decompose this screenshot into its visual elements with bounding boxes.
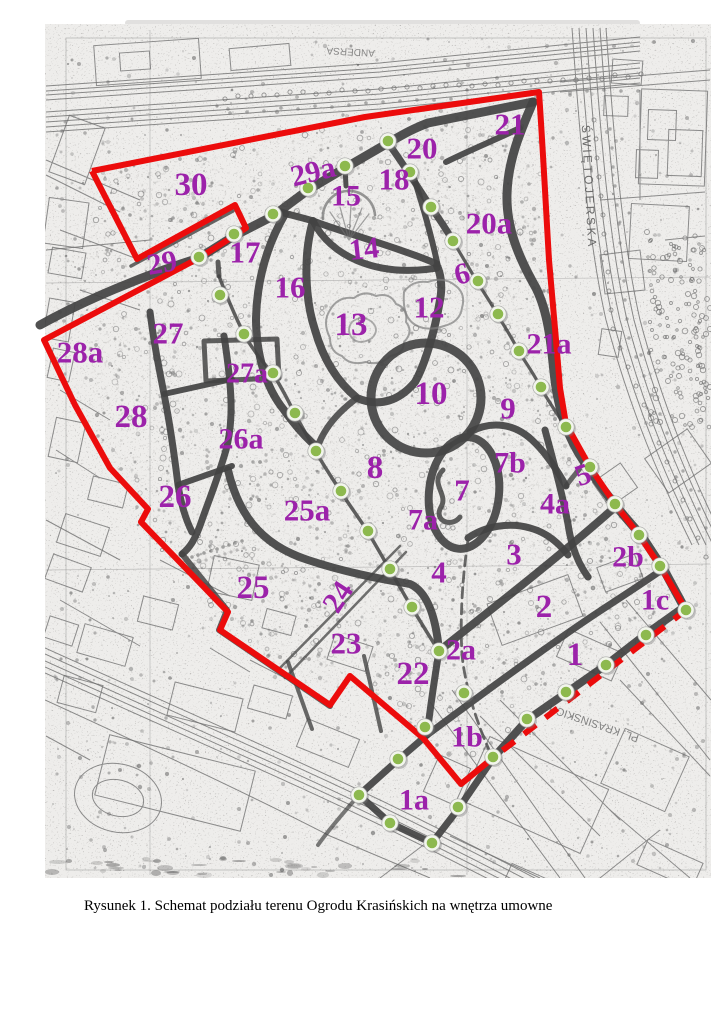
svg-text:Rysunek 1. Schemat podziału te: Rysunek 1. Schemat podziału terenu Ogrod… [84, 898, 553, 914]
svg-text:30: 30 [175, 167, 208, 203]
svg-text:26a: 26a [219, 423, 264, 456]
svg-text:20a: 20a [466, 206, 513, 241]
svg-text:27: 27 [153, 316, 184, 351]
svg-text:28: 28 [115, 399, 148, 435]
svg-text:21a: 21a [527, 328, 572, 361]
svg-text:15: 15 [331, 180, 361, 213]
svg-text:1c: 1c [641, 584, 669, 617]
svg-text:17: 17 [230, 235, 261, 270]
svg-text:20: 20 [407, 131, 438, 166]
svg-text:18: 18 [379, 162, 410, 197]
svg-text:7a: 7a [408, 504, 438, 537]
svg-text:4a: 4a [540, 488, 570, 521]
svg-text:2b: 2b [612, 541, 644, 574]
svg-text:14: 14 [347, 231, 380, 267]
svg-text:1a: 1a [399, 784, 429, 817]
svg-text:4: 4 [431, 555, 447, 590]
svg-text:23: 23 [331, 626, 362, 661]
svg-text:21: 21 [495, 107, 526, 142]
svg-text:3: 3 [506, 537, 522, 572]
svg-text:27a: 27a [226, 359, 268, 390]
svg-text:13: 13 [335, 307, 368, 343]
svg-text:10: 10 [415, 376, 448, 412]
svg-text:7: 7 [454, 473, 470, 508]
svg-text:9: 9 [500, 391, 516, 426]
svg-text:29: 29 [144, 244, 179, 282]
svg-text:7b: 7b [494, 447, 526, 480]
svg-text:25a: 25a [284, 493, 331, 528]
svg-text:8: 8 [367, 450, 384, 486]
svg-text:1: 1 [567, 637, 584, 673]
svg-text:2: 2 [536, 589, 553, 625]
svg-text:22: 22 [397, 656, 430, 692]
svg-text:1b: 1b [451, 721, 483, 754]
svg-text:25: 25 [237, 570, 270, 606]
svg-text:2a: 2a [446, 634, 476, 667]
svg-text:16: 16 [275, 270, 306, 305]
svg-text:26: 26 [159, 479, 192, 515]
svg-text:28a: 28a [57, 335, 104, 370]
svg-text:12: 12 [414, 290, 445, 325]
